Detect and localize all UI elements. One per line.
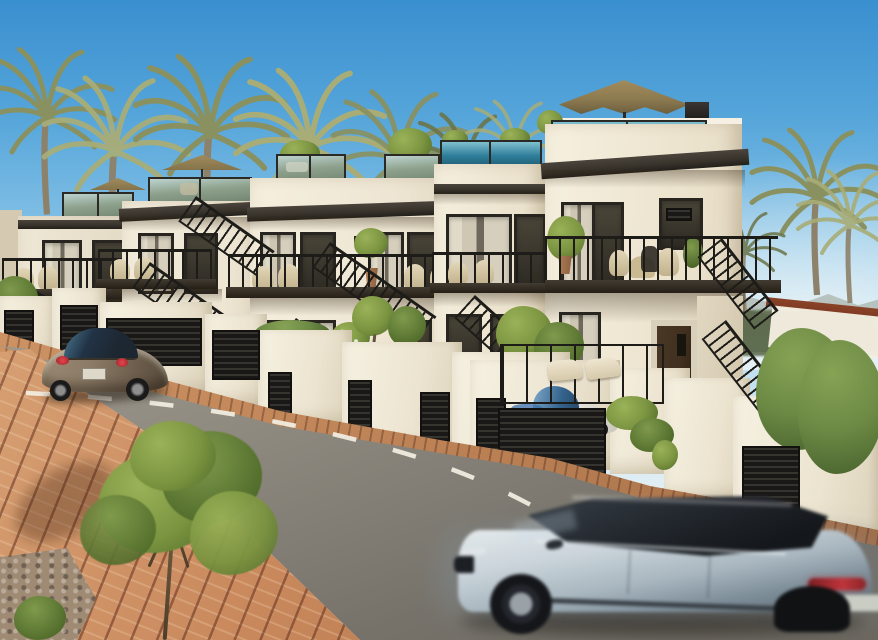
tree-trunk [163,545,174,640]
beetle-wheel [126,378,149,401]
suv-grille [454,556,474,573]
suv-foreground [452,490,878,640]
beetle-glass [64,328,138,360]
tree-foliage [80,495,156,565]
tree-foliage [190,491,278,575]
architectural-render-scene [0,0,878,640]
parked-beetle [40,328,172,406]
street-tree [70,425,285,640]
beetle-license-plate [82,368,106,380]
suv-rear-wheel [774,586,850,632]
beetle-taillight [116,358,128,367]
suv-front-wheel [490,574,552,634]
beetle-taillight [56,356,69,365]
beetle-wheel [50,380,71,401]
